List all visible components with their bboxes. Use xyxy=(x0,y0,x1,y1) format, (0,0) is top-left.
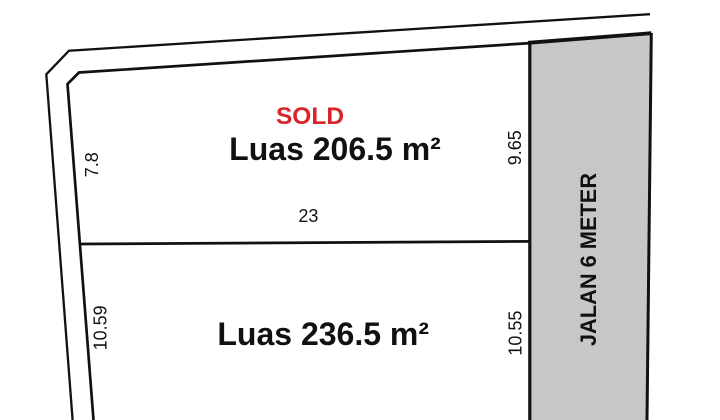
svg-text:SOLD: SOLD xyxy=(276,103,344,130)
svg-text:10.55: 10.55 xyxy=(505,311,525,356)
svg-text:Luas 236.5 m²: Luas 236.5 m² xyxy=(217,316,429,352)
svg-text:JALAN 6 METER: JALAN 6 METER xyxy=(576,173,601,346)
svg-text:9.65: 9.65 xyxy=(505,130,525,165)
svg-text:7.8: 7.8 xyxy=(82,152,102,177)
svg-text:23: 23 xyxy=(298,206,318,226)
svg-text:10.59: 10.59 xyxy=(91,305,111,350)
svg-text:Luas 206.5 m²: Luas 206.5 m² xyxy=(229,131,441,167)
